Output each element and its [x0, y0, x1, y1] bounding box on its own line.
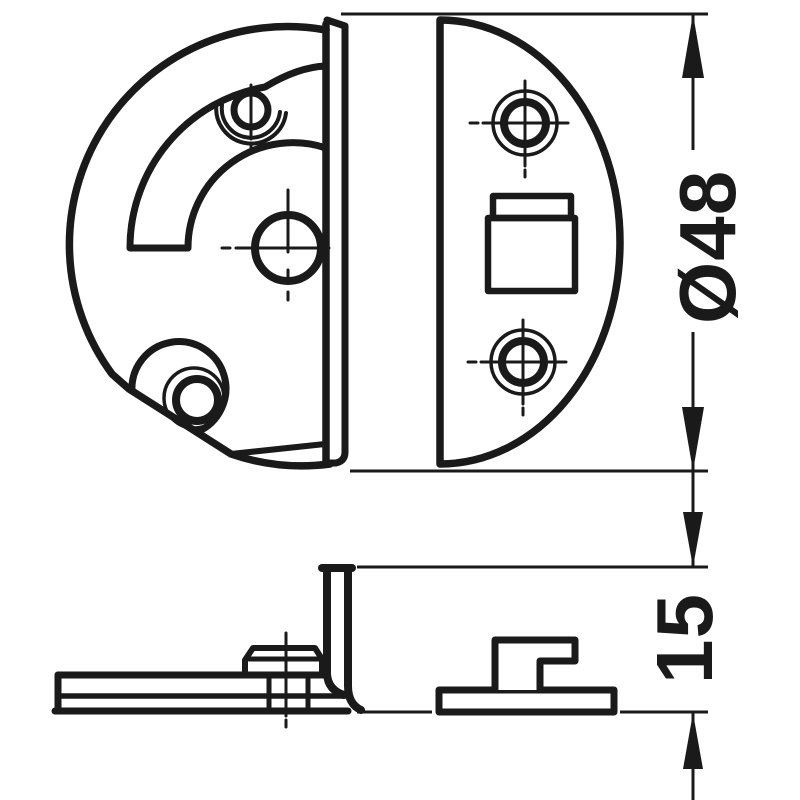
diameter-label: Ø48 — [663, 170, 752, 324]
housing-disc-outline — [69, 27, 330, 466]
cover-bottom-hole-crosshair — [468, 320, 566, 415]
front-view-housing — [69, 20, 345, 466]
technical-drawing-canvas: Ø48 15 — [0, 0, 800, 800]
locking-ring-inner — [176, 379, 218, 421]
arrowhead-down — [682, 407, 704, 471]
side-view-cover — [439, 640, 614, 712]
height-label: 15 — [640, 593, 729, 684]
drawing-page: Ø48 15 — [0, 0, 800, 800]
arrowhead-down-outside — [683, 512, 703, 567]
front-view-cover — [440, 20, 620, 464]
bracket-flange-left-wall — [327, 572, 344, 695]
arrowhead-up-outside — [683, 713, 703, 769]
cam-slot — [130, 66, 326, 248]
arrowhead-up — [682, 14, 704, 78]
side-view-bracket — [55, 568, 361, 727]
cover-profile-base — [439, 690, 614, 712]
cam-spiral-edge — [231, 444, 325, 454]
cover-outline — [440, 20, 620, 464]
housing-center-hole-crosshair — [222, 190, 329, 300]
cover-square-opening-step — [493, 196, 571, 218]
bracket-flange-right-wall — [348, 572, 361, 710]
cover-top-hole-crosshair — [470, 81, 568, 177]
cover-profile-hook — [495, 640, 575, 690]
cover-square-opening — [488, 218, 575, 291]
